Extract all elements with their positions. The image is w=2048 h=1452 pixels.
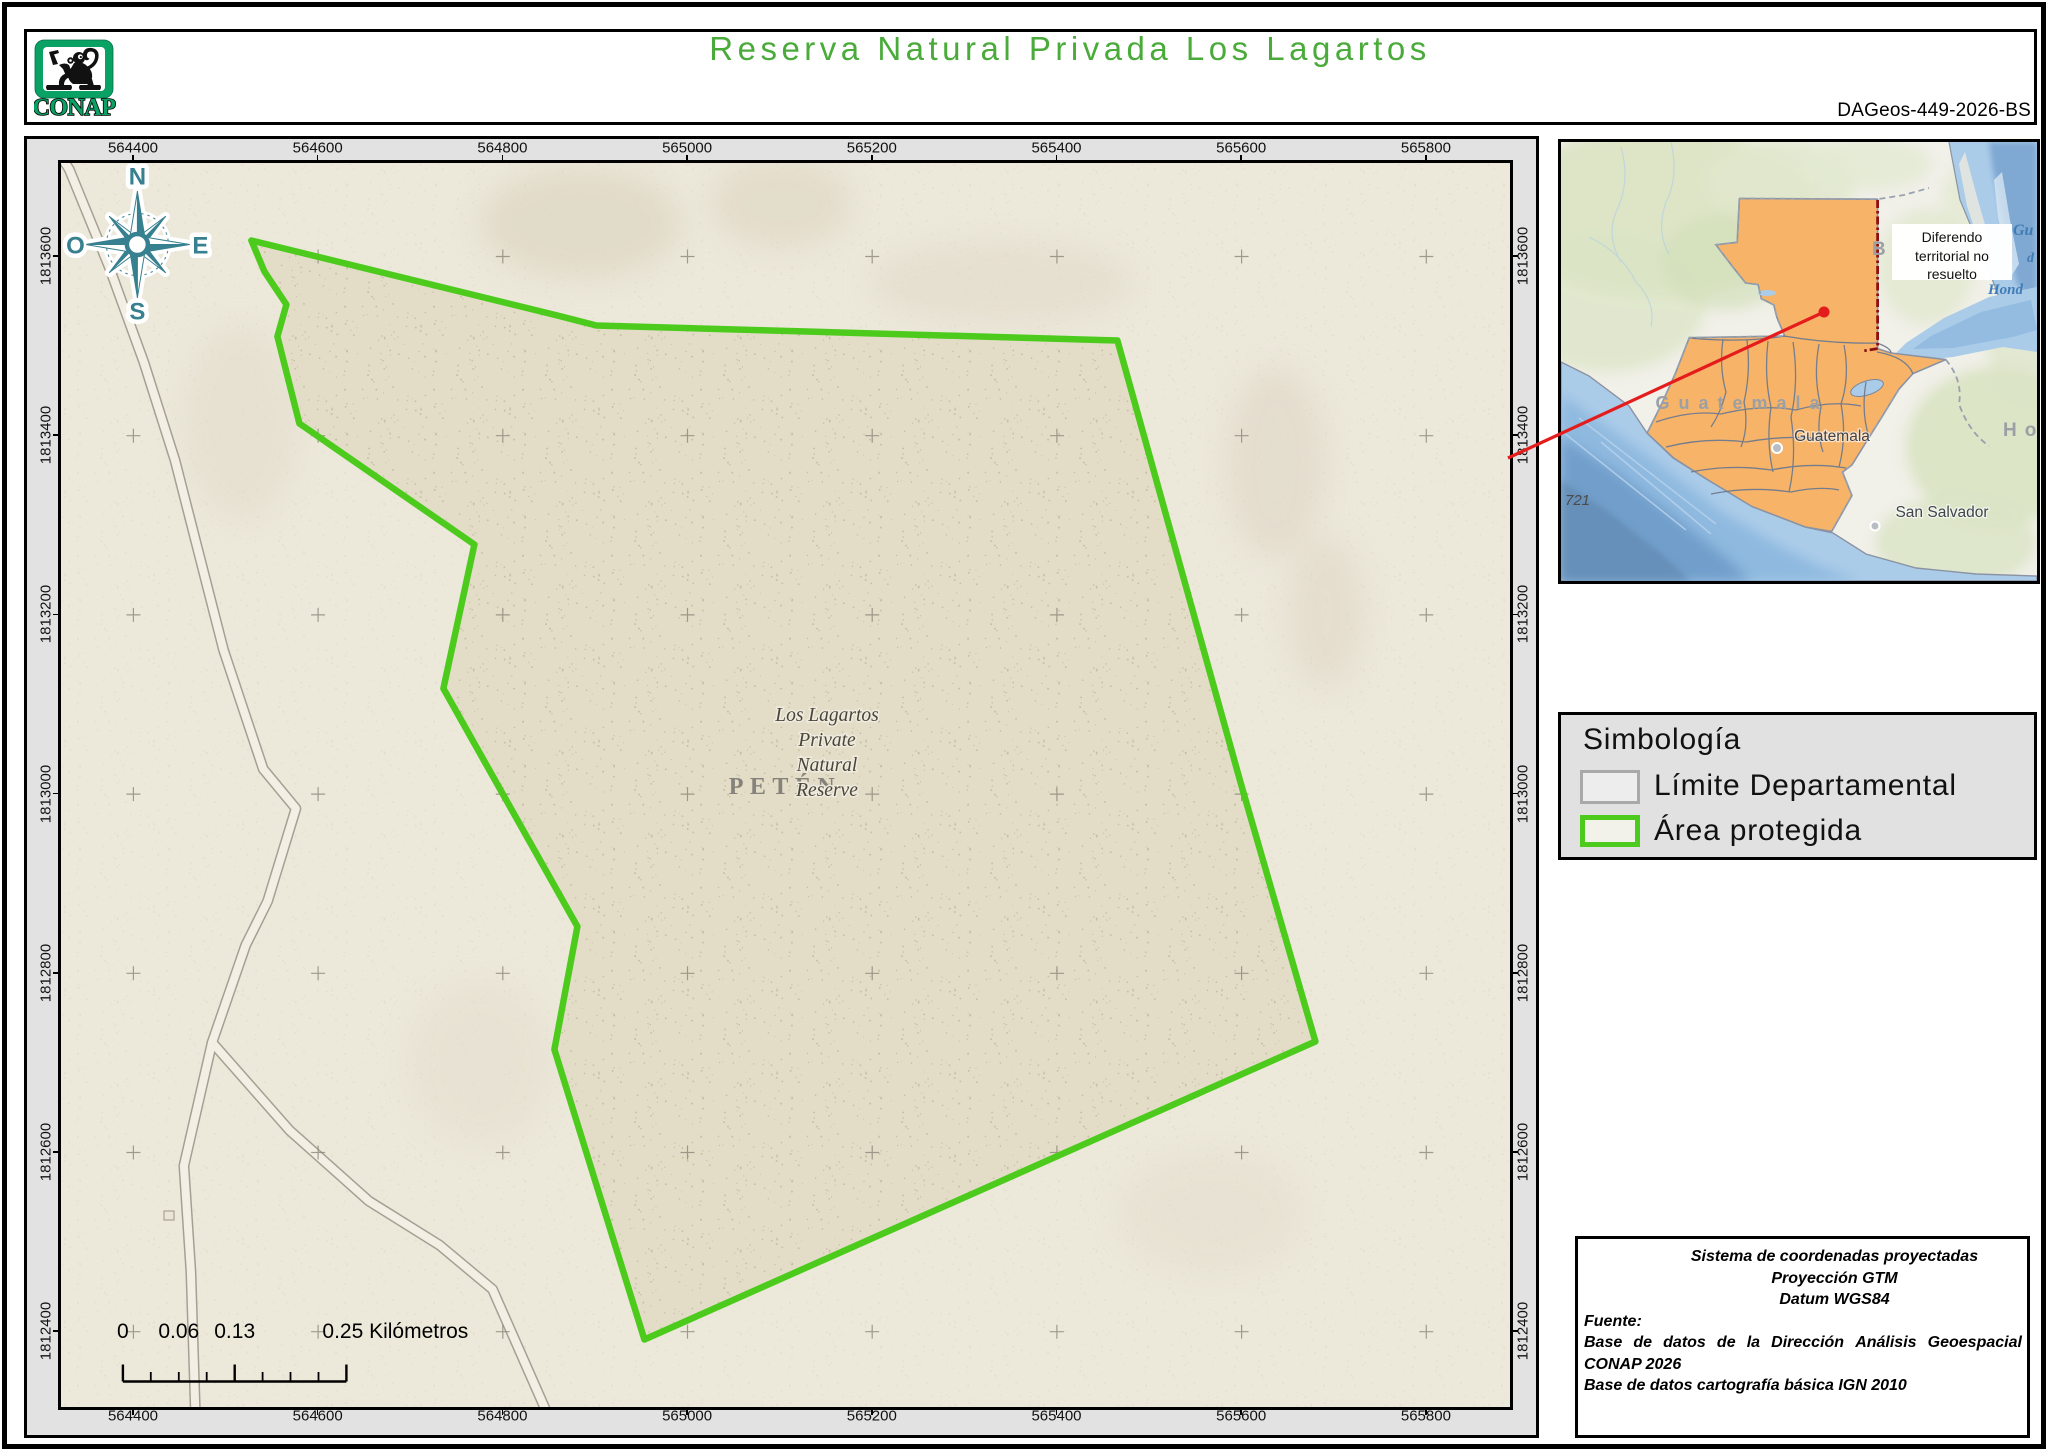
svg-text:O: O — [66, 232, 85, 259]
svg-text:Diferendo: Diferendo — [1922, 229, 1983, 245]
svg-text:CONAP: CONAP — [34, 95, 115, 119]
svg-text:Private: Private — [797, 730, 856, 751]
svg-text:territorial no: territorial no — [1915, 248, 1989, 264]
svg-text:Guatemala: Guatemala — [1794, 428, 1870, 445]
svg-text:0.13: 0.13 — [214, 1320, 255, 1343]
svg-text:resuelto: resuelto — [1927, 266, 1977, 282]
svg-text:Natural: Natural — [795, 755, 857, 776]
svg-text:0.06: 0.06 — [158, 1320, 199, 1343]
svg-text:Los Lagartos: Los Lagartos — [774, 705, 879, 726]
svg-text:721: 721 — [1565, 492, 1590, 509]
svg-text:Ho: Ho — [2003, 420, 2037, 441]
svg-text:N: N — [128, 163, 145, 190]
svg-text:San Salvador: San Salvador — [1895, 504, 1988, 521]
svg-text:Gu: Gu — [2013, 222, 2034, 239]
svg-text:Hond: Hond — [1987, 282, 2024, 298]
svg-text:E: E — [192, 232, 208, 259]
svg-text:S: S — [129, 298, 145, 325]
svg-text:0.25 Kilómetros: 0.25 Kilómetros — [322, 1320, 468, 1343]
svg-text:0: 0 — [117, 1320, 129, 1343]
svg-text:B: B — [1872, 239, 1886, 260]
svg-text:Guatemala: Guatemala — [1655, 393, 1828, 413]
svg-text:Reserve: Reserve — [795, 780, 858, 801]
svg-text:d: d — [2027, 251, 2035, 266]
